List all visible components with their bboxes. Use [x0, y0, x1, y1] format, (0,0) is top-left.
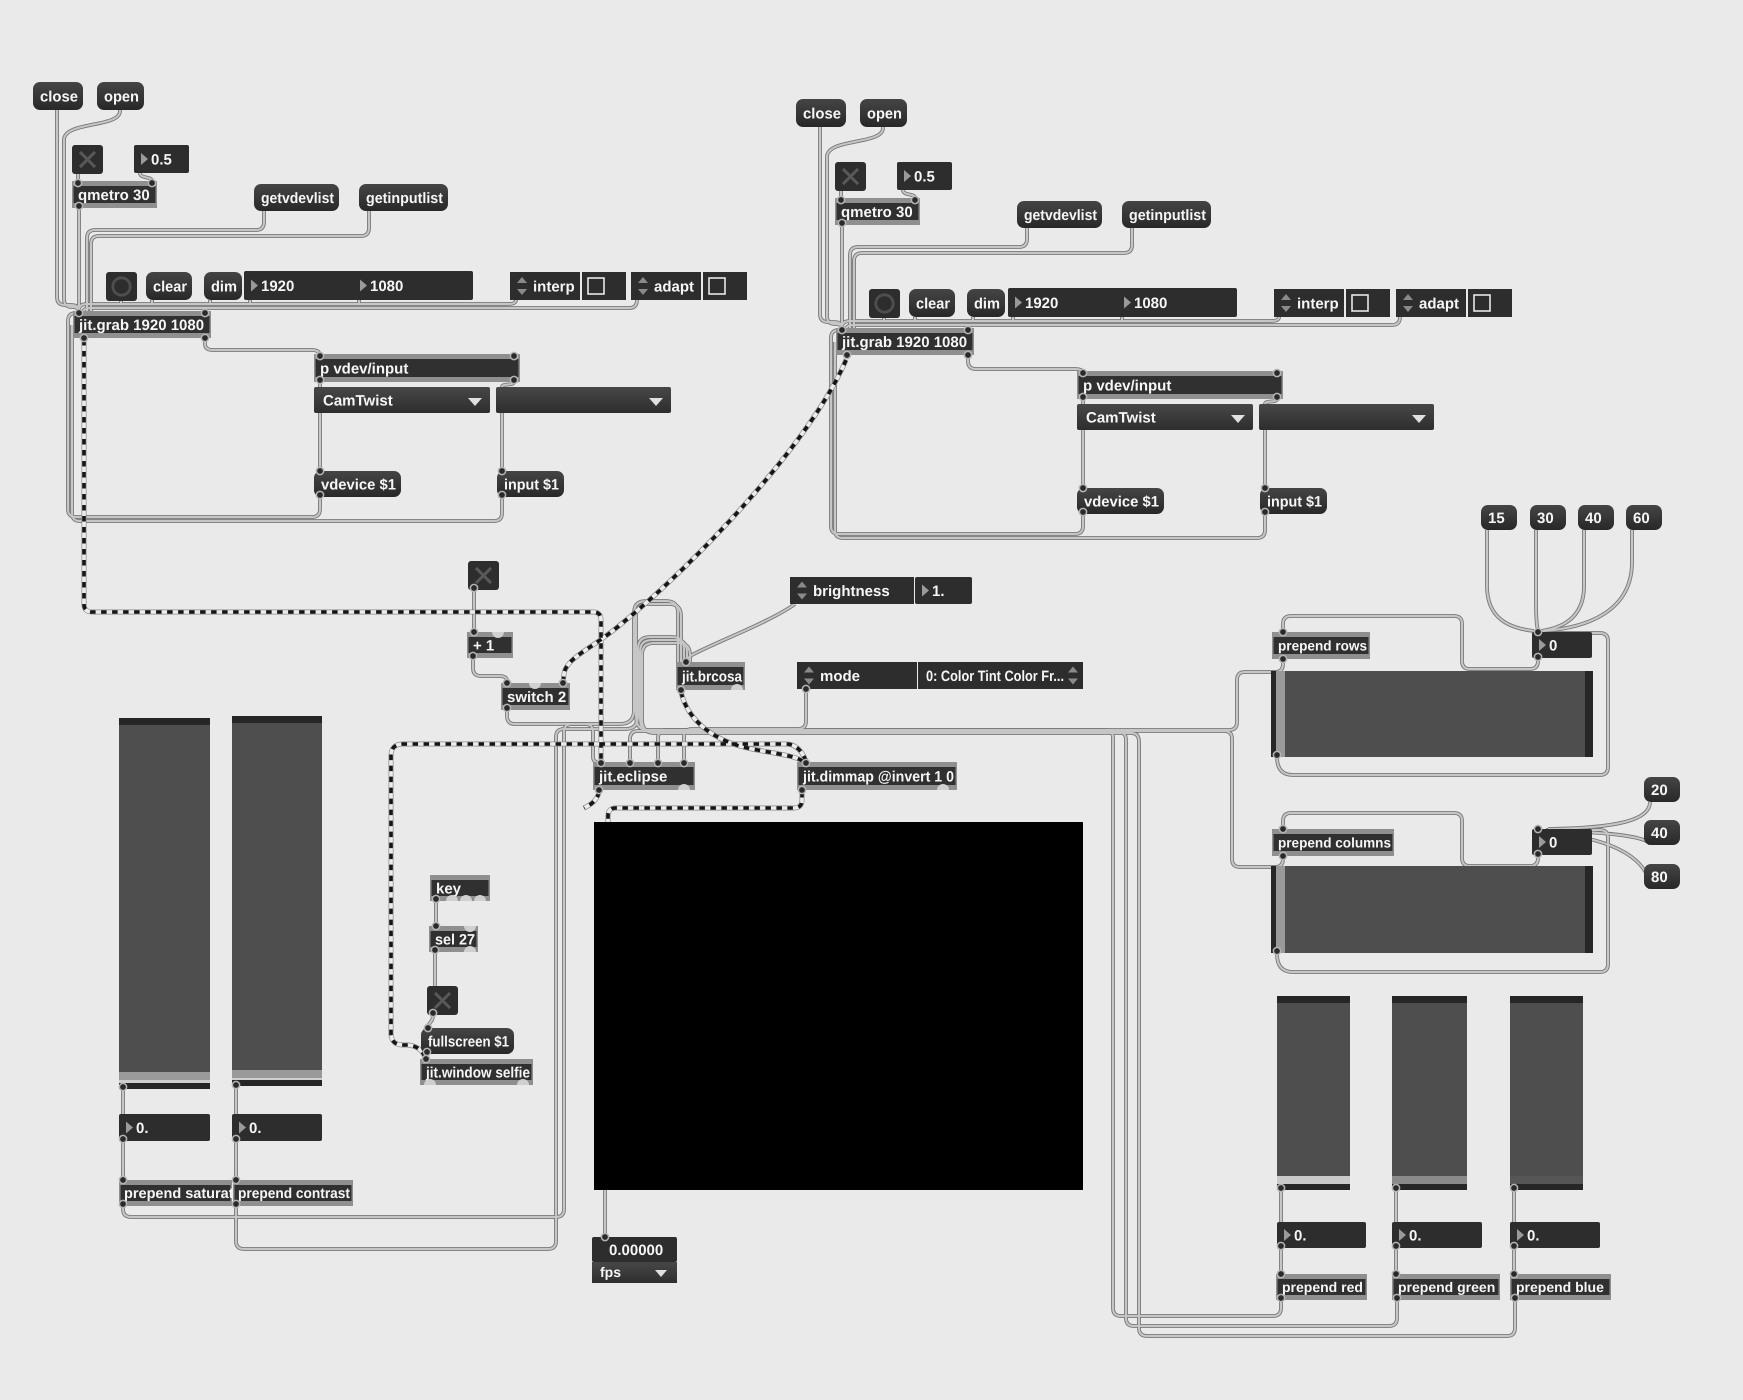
- svg-text:brightness: brightness: [813, 583, 890, 600]
- svg-text:1080: 1080: [370, 278, 403, 295]
- svg-text:0.5: 0.5: [914, 168, 935, 185]
- svg-text:jit.grab 1920 1080: jit.grab 1920 1080: [841, 334, 967, 351]
- svg-text:1080: 1080: [1134, 295, 1167, 312]
- svg-text:30: 30: [1537, 510, 1554, 527]
- svg-text:close: close: [40, 88, 78, 105]
- svg-text:CamTwist: CamTwist: [323, 392, 393, 409]
- svg-text:40: 40: [1651, 825, 1668, 842]
- svg-text:interp: interp: [1297, 295, 1339, 312]
- svg-text:0.: 0.: [249, 1120, 262, 1137]
- svg-text:dim: dim: [211, 278, 237, 295]
- svg-text:input $1: input $1: [504, 476, 559, 493]
- svg-text:1920: 1920: [1025, 295, 1058, 312]
- svg-text:jit.dimmap @invert 1 0: jit.dimmap @invert 1 0: [802, 768, 954, 785]
- svg-text:0: 0: [1549, 834, 1557, 851]
- svg-text:0: Color Tint Color Fr...: 0: Color Tint Color Fr...: [926, 668, 1064, 685]
- svg-text:0.5: 0.5: [151, 151, 172, 168]
- svg-text:0.00000: 0.00000: [609, 1242, 663, 1259]
- svg-text:switch 2: switch 2: [507, 689, 566, 706]
- svg-text:prepend contrast: prepend contrast: [238, 1186, 350, 1202]
- svg-text:getinputlist: getinputlist: [366, 190, 443, 207]
- svg-text:close: close: [803, 105, 841, 122]
- svg-text:0.: 0.: [1294, 1227, 1307, 1244]
- svg-text:jit.grab 1920 1080: jit.grab 1920 1080: [78, 317, 204, 334]
- svg-text:mode: mode: [820, 668, 860, 685]
- svg-text:open: open: [867, 105, 902, 122]
- svg-text:interp: interp: [533, 278, 575, 295]
- svg-text:80: 80: [1651, 869, 1668, 886]
- svg-text:open: open: [104, 88, 139, 105]
- svg-text:0.: 0.: [1527, 1227, 1540, 1244]
- svg-text:vdevice $1: vdevice $1: [321, 476, 396, 493]
- svg-text:0.: 0.: [1409, 1227, 1422, 1244]
- svg-text:qmetro 30: qmetro 30: [841, 204, 913, 221]
- svg-text:jit.eclipse: jit.eclipse: [598, 768, 667, 785]
- svg-text:adapt: adapt: [654, 278, 694, 295]
- svg-text:qmetro 30: qmetro 30: [78, 187, 150, 204]
- svg-text:jit.window selfie: jit.window selfie: [425, 1064, 530, 1081]
- svg-text:fullscreen $1: fullscreen $1: [428, 1033, 509, 1050]
- svg-text:0.: 0.: [136, 1120, 149, 1137]
- svg-text:prepend columns: prepend columns: [1278, 835, 1391, 851]
- svg-text:clear: clear: [916, 295, 950, 312]
- svg-text:prepend green: prepend green: [1398, 1279, 1495, 1295]
- svg-text:input $1: input $1: [1267, 493, 1322, 510]
- svg-text:adapt: adapt: [1419, 295, 1459, 312]
- svg-text:getvdevlist: getvdevlist: [261, 190, 334, 207]
- svg-text:prepend red: prepend red: [1282, 1279, 1363, 1295]
- svg-text:clear: clear: [153, 278, 187, 295]
- svg-text:getvdevlist: getvdevlist: [1024, 207, 1097, 224]
- svg-text:fps: fps: [600, 1264, 621, 1280]
- svg-text:sel 27: sel 27: [435, 931, 475, 948]
- svg-text:+ 1: + 1: [473, 637, 494, 654]
- svg-text:15: 15: [1488, 510, 1505, 527]
- svg-text:prepend rows: prepend rows: [1278, 638, 1367, 654]
- svg-text:1920: 1920: [261, 278, 294, 295]
- svg-text:key: key: [436, 880, 462, 897]
- svg-text:20: 20: [1651, 782, 1668, 799]
- svg-text:jit.brcosa: jit.brcosa: [681, 668, 742, 685]
- svg-text:0: 0: [1549, 637, 1557, 654]
- svg-text:60: 60: [1633, 510, 1650, 527]
- svg-text:CamTwist: CamTwist: [1086, 409, 1156, 426]
- svg-text:getinputlist: getinputlist: [1129, 207, 1206, 224]
- svg-text:prepend blue: prepend blue: [1516, 1279, 1604, 1295]
- svg-text:1.: 1.: [932, 583, 945, 600]
- svg-text:vdevice $1: vdevice $1: [1084, 493, 1159, 510]
- svg-text:40: 40: [1585, 510, 1602, 527]
- svg-text:dim: dim: [974, 295, 1000, 312]
- svg-text:p vdev/input: p vdev/input: [1083, 377, 1171, 394]
- svg-text:p vdev/input: p vdev/input: [320, 360, 408, 377]
